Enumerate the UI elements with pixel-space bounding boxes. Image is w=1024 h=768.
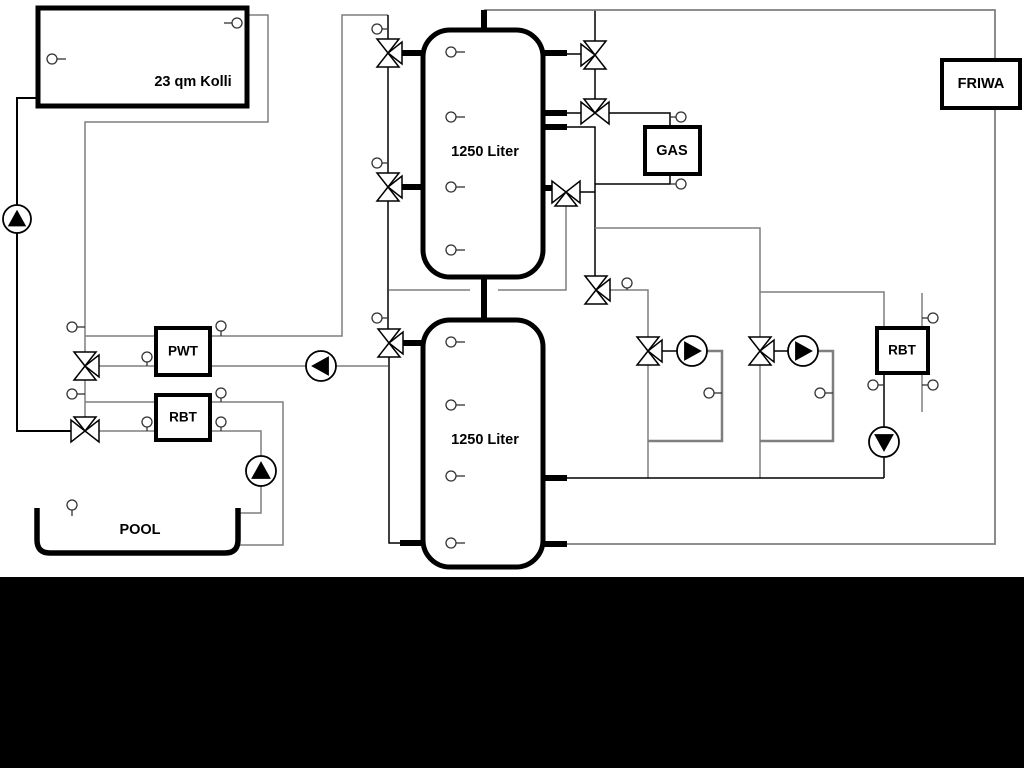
sensor-icon-rbt1-out-bottom-sensor: [216, 417, 226, 427]
sensor-icon-riser-top-sensor: [372, 24, 382, 34]
sensor-icon-circuit2-loop-sensor: [815, 388, 825, 398]
sensor-icon-solar-line-sensor1: [67, 322, 77, 332]
gas-boiler-label: GAS: [656, 143, 688, 159]
sensor-icon-rbt2-sec-bottom-sensor: [928, 380, 938, 390]
sensor-icon-rbt2-sec-top-sensor: [928, 313, 938, 323]
pool-label: POOL: [119, 522, 160, 538]
sensor-icon-rbt2-bottom-sensor: [868, 380, 878, 390]
sensor-icon-tank2-sensor2: [446, 400, 456, 410]
sensor-icon-circuit1-loop-sensor: [704, 388, 714, 398]
friwa-station-label: FRIWA: [958, 76, 1005, 92]
rbt1-exchanger-label: RBT: [169, 410, 197, 425]
sensor-icon-tank2-sensor3: [446, 471, 456, 481]
sensor-icon-riser-low-sensor: [372, 313, 382, 323]
sensor-icon-pwt-in-sensor: [142, 352, 152, 362]
heating-schematic-diagram: 23 qm Kolli1250 Liter1250 LiterGASFRIWAP…: [0, 0, 1024, 768]
sensor-icon-solar-line-sensor2: [67, 389, 77, 399]
schematic-page: 23 qm Kolli1250 Liter1250 LiterGASFRIWAP…: [0, 0, 1024, 768]
letterbox-bar: [0, 577, 1024, 768]
sensor-icon-distribution-sensor: [622, 278, 632, 288]
sensor-icon-tank1-sensor1: [446, 47, 456, 57]
tank1-label: 1250 Liter: [451, 144, 519, 160]
sensor-icon-gas-bottom-sensor: [676, 179, 686, 189]
sensor-icon-collector-top-sensor: [232, 18, 242, 28]
sensor-icon-tank1-sensor4: [446, 245, 456, 255]
collector: [38, 8, 247, 106]
tank2-label: 1250 Liter: [451, 432, 519, 448]
sensor-icon-tank2-sensor1: [446, 337, 456, 347]
sensor-icon-rbt1-in-sensor: [142, 417, 152, 427]
rbt2-exchanger-label: RBT: [888, 343, 916, 358]
sensor-icon-pwt-out-top-sensor: [216, 321, 226, 331]
sensor-icon-tank2-sensor4: [446, 538, 456, 548]
sensor-icon-collector-low-sensor: [47, 54, 57, 64]
pwt-exchanger-label: PWT: [168, 344, 199, 359]
collector-label: 23 qm Kolli: [154, 74, 231, 90]
sensor-icon-rbt1-out-top-sensor: [216, 388, 226, 398]
sensor-icon-riser-mid-sensor: [372, 158, 382, 168]
sensor-icon-tank1-sensor3: [446, 182, 456, 192]
sensor-icon-gas-top-sensor: [676, 112, 686, 122]
sensor-icon-tank1-sensor2: [446, 112, 456, 122]
sensor-icon-pool-sensor: [67, 500, 77, 510]
